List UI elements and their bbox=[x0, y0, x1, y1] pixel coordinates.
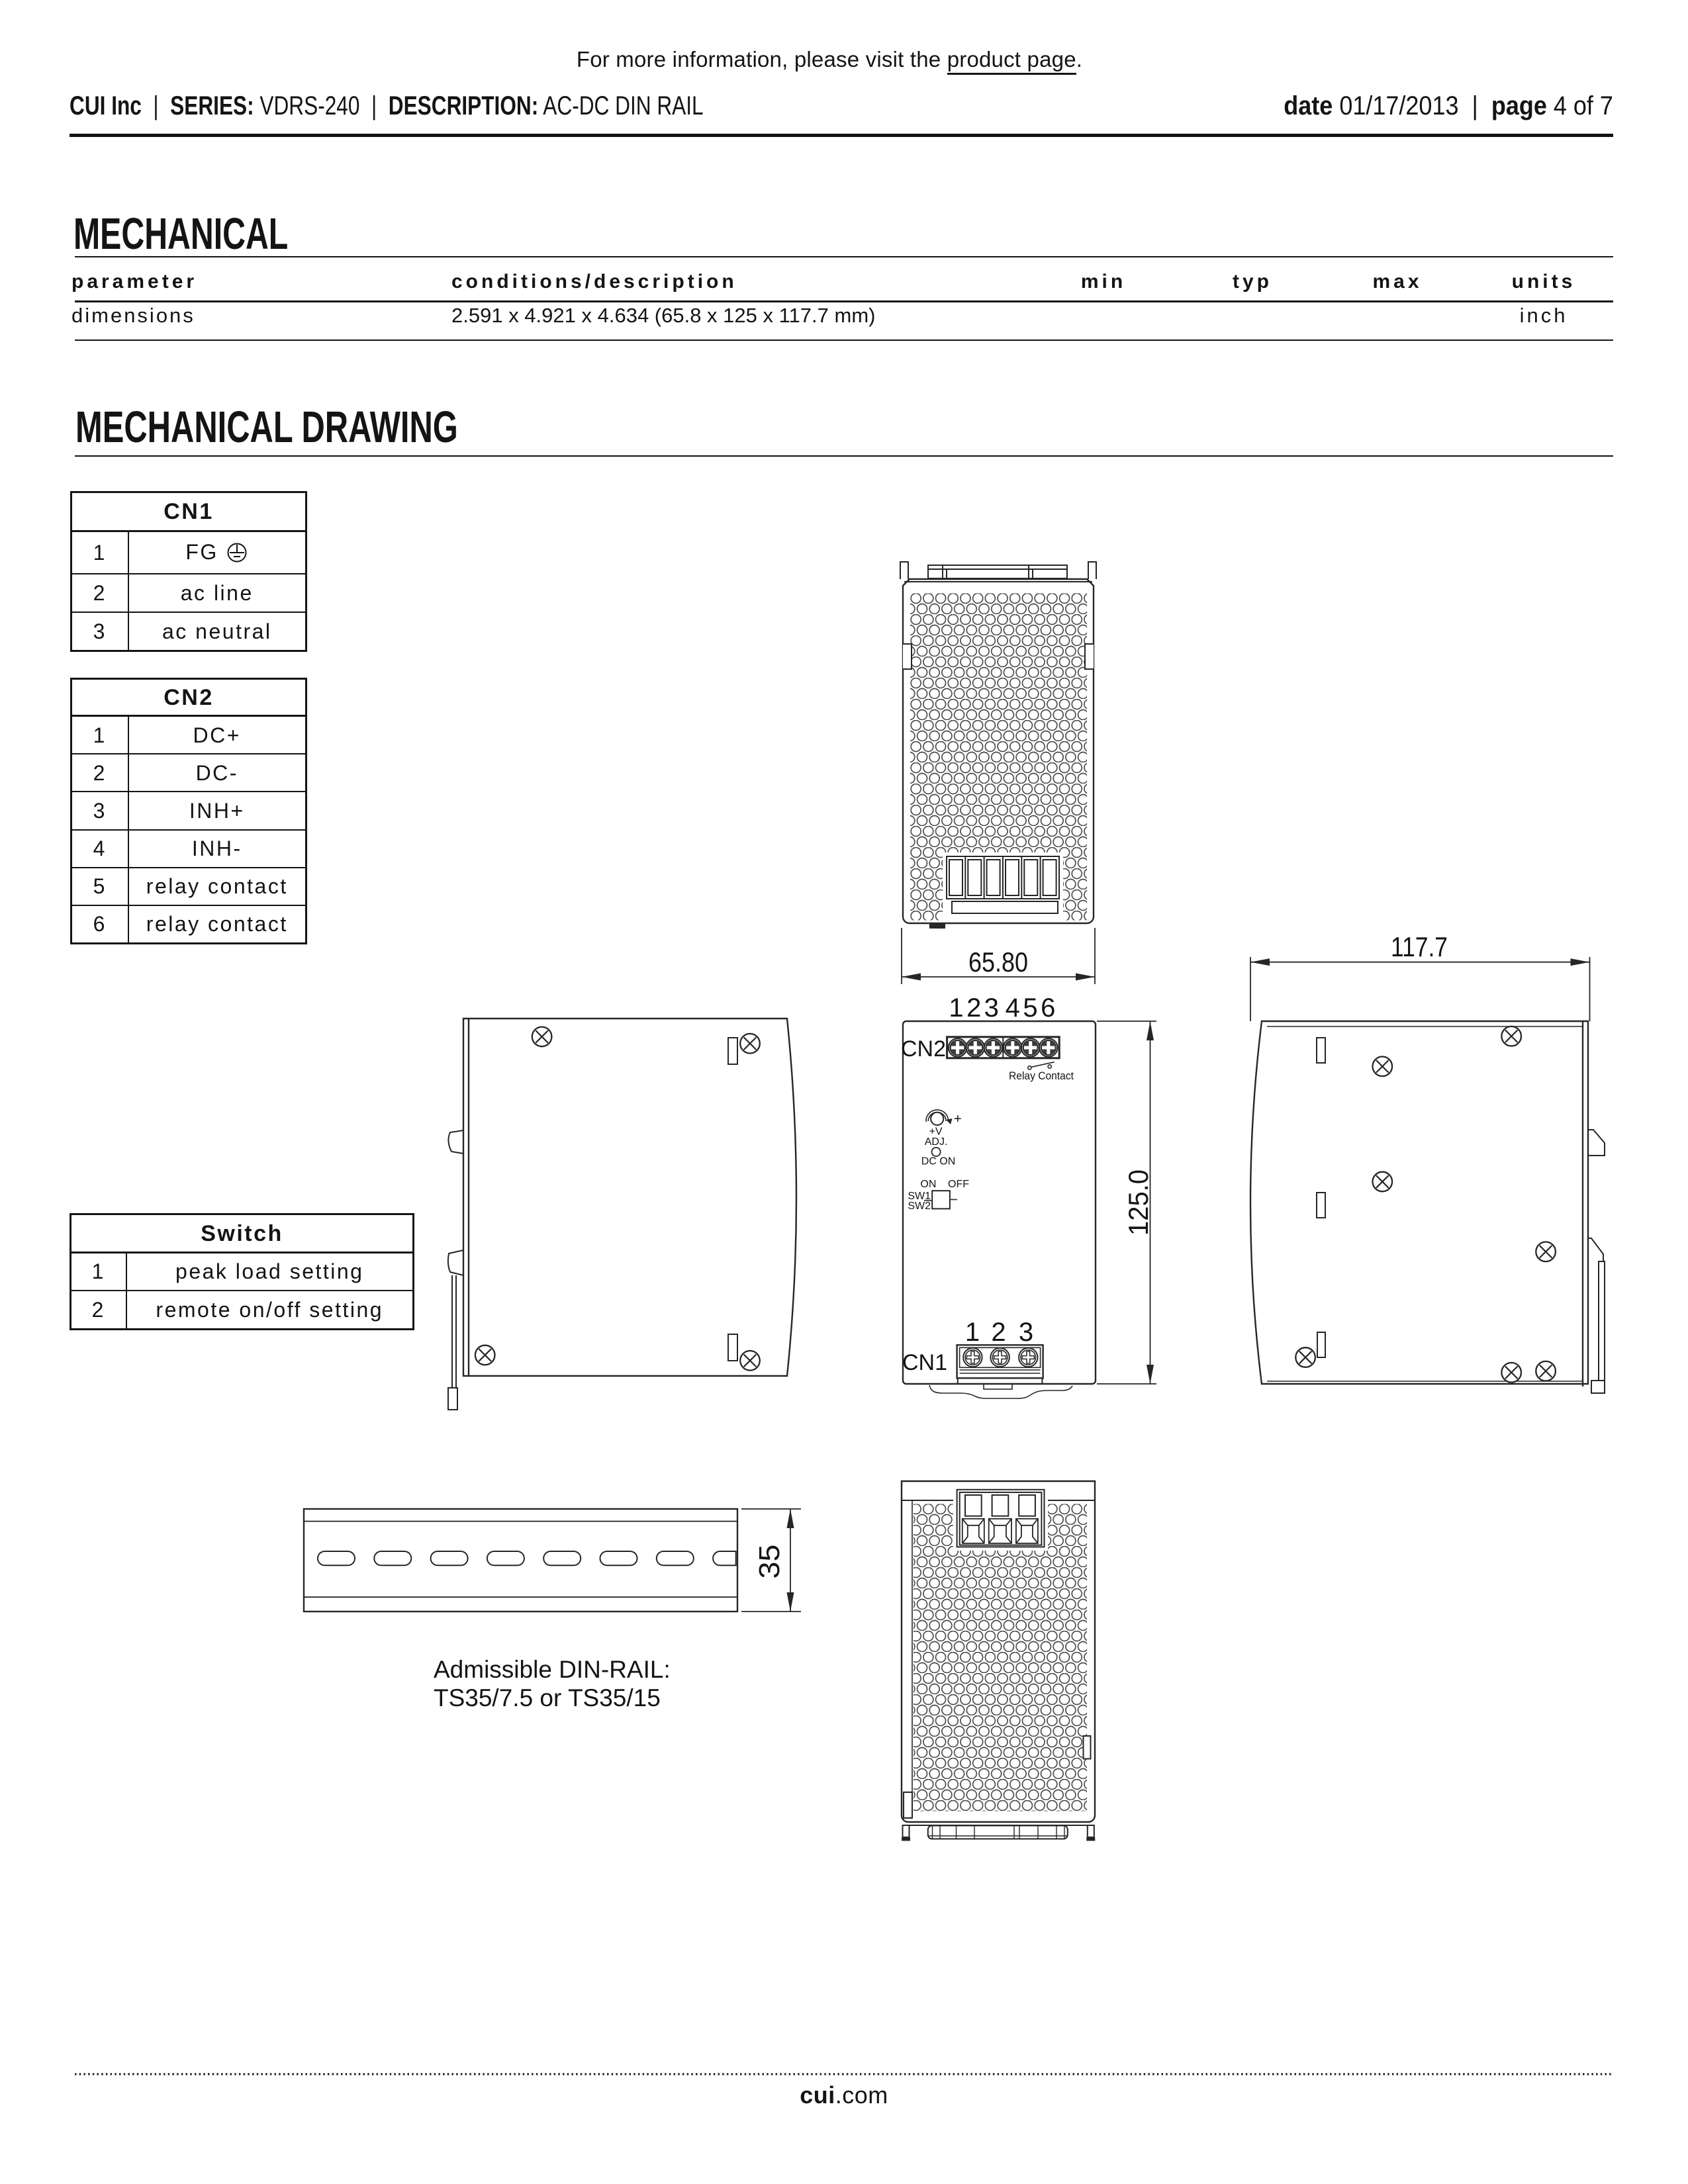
svg-text:+: + bbox=[954, 1112, 962, 1126]
svg-text:6: 6 bbox=[1041, 993, 1055, 1023]
svg-text:Relay Contact: Relay Contact bbox=[1009, 1069, 1074, 1082]
svg-text:ON: ON bbox=[920, 1179, 936, 1190]
svg-text:125.0: 125.0 bbox=[1123, 1169, 1154, 1236]
svg-text:OFF: OFF bbox=[948, 1179, 969, 1190]
svg-text:2: 2 bbox=[991, 1318, 1006, 1347]
svg-text:CN2: CN2 bbox=[901, 1036, 946, 1062]
svg-text:35: 35 bbox=[753, 1545, 786, 1579]
svg-text:3: 3 bbox=[984, 993, 999, 1023]
svg-text:65.80: 65.80 bbox=[968, 946, 1028, 978]
svg-text:1: 1 bbox=[949, 993, 963, 1023]
svg-text:SW2: SW2 bbox=[908, 1201, 931, 1212]
svg-text:DC ON: DC ON bbox=[921, 1156, 956, 1167]
svg-text:1: 1 bbox=[965, 1318, 980, 1347]
svg-text:4: 4 bbox=[1006, 993, 1020, 1023]
svg-text:3: 3 bbox=[1019, 1318, 1033, 1347]
svg-text:2: 2 bbox=[966, 993, 981, 1023]
svg-text:117.7: 117.7 bbox=[1391, 931, 1448, 962]
svg-text:ADJ.: ADJ. bbox=[925, 1136, 948, 1148]
svg-text:CN1: CN1 bbox=[902, 1350, 947, 1375]
svg-text:5: 5 bbox=[1023, 993, 1037, 1023]
